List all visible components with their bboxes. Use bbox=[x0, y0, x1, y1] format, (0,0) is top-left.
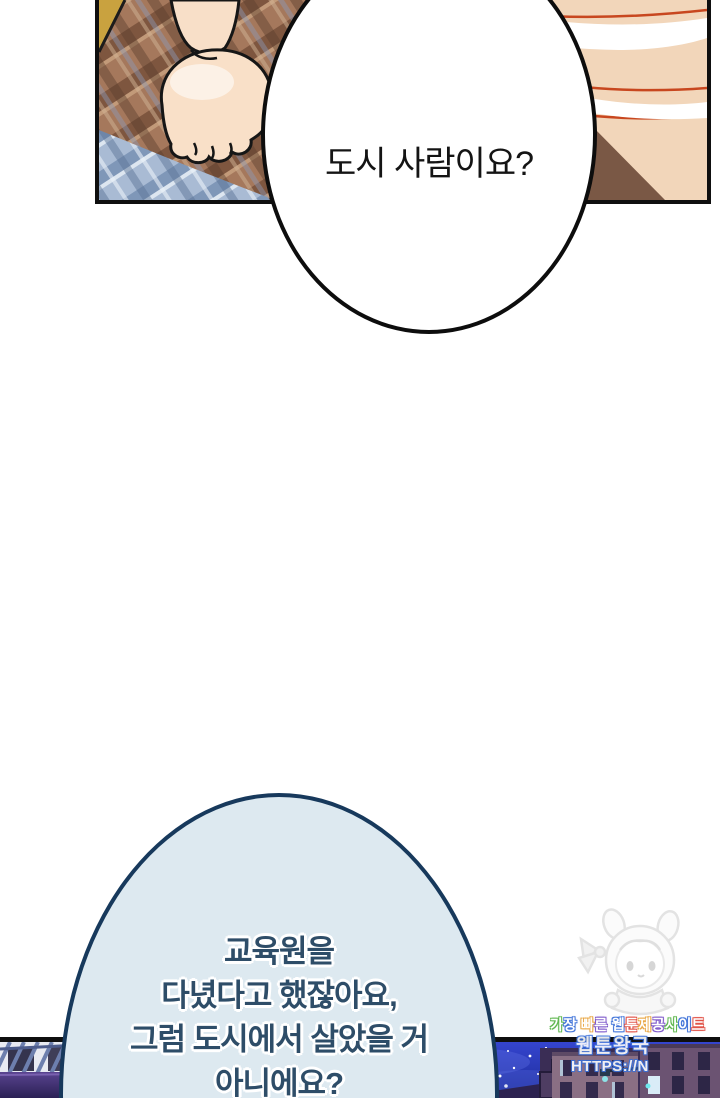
chibi-watermark bbox=[568, 898, 708, 1028]
speech-text: 교육원을 다녔다고 했잖아요, 그럼 도시에서 살았을 거 아니에요? bbox=[63, 930, 495, 1098]
webtoon-page: 도시 사람이요? bbox=[0, 0, 720, 1098]
speech-line: 아니에요? bbox=[63, 1062, 495, 1098]
speech-line: 그럼 도시에서 살았을 거 bbox=[63, 1018, 495, 1062]
speech-bubble-city-person: 도시 사람이요? bbox=[261, 0, 597, 334]
speech-line: 교육원을 bbox=[63, 930, 495, 974]
street-lamp-glow bbox=[602, 1076, 608, 1082]
watermark-line-2: 웹툰왕국 bbox=[576, 1037, 718, 1056]
watermark-line-1: 가장 빠른 웹툰제공사이트 bbox=[550, 1019, 718, 1034]
watermark-line-3: HTTPS://N bbox=[571, 1059, 718, 1074]
speech-bubble-education: 교육원을 다녔다고 했잖아요, 그럼 도시에서 살았을 거 아니에요? bbox=[59, 793, 499, 1098]
speech-line: 다녔다고 했잖아요, bbox=[63, 974, 495, 1018]
watermark-text: 가장 빠른 웹툰제공사이트 웹툰왕국 HTTPS://N bbox=[550, 1019, 718, 1074]
speech-text: 도시 사람이요? bbox=[265, 136, 593, 185]
